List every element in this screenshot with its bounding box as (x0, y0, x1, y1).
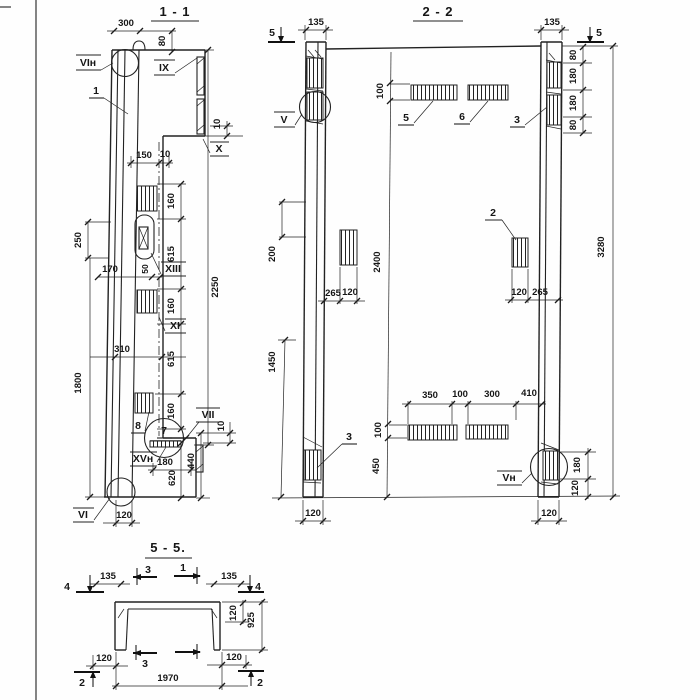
insert-5 (411, 85, 457, 100)
dim-2400: 2400 (372, 251, 383, 272)
section-2-2-title: 2 - 2 (422, 4, 453, 19)
section-5-5: 5 - 5. 4 4 3 1 3 2 2 (64, 540, 268, 690)
node-label-vi: VI (78, 509, 88, 521)
dim-135: 135 (221, 571, 238, 582)
dim-135: 135 (544, 17, 561, 28)
dim-180: 180 (157, 457, 173, 468)
dim-50: 50 (140, 264, 150, 274)
dim-120: 120 (342, 287, 358, 298)
callout-1: 1 (93, 85, 99, 97)
sheet-border (0, 0, 36, 700)
dim-150: 150 (136, 150, 152, 161)
node-label-xiii: XIII (165, 263, 181, 275)
dim-135: 135 (308, 17, 325, 28)
dim-120: 120 (228, 605, 239, 621)
dim-80: 80 (568, 50, 579, 61)
dim-160: 160 (166, 298, 177, 314)
dim-3280: 3280 (596, 236, 607, 257)
node-label-vn: Vн (502, 472, 515, 484)
dim-120: 120 (511, 287, 527, 298)
dim-250: 250 (73, 232, 84, 248)
dim-615: 615 (166, 245, 177, 262)
dim-100: 100 (375, 83, 386, 99)
dim-180: 180 (568, 95, 579, 111)
anchor-plate (137, 186, 157, 211)
cut-label-5: 5 (269, 27, 275, 39)
node-label-x: X (215, 143, 222, 155)
cut-markers-5: 5 5 (268, 27, 604, 43)
cut-label-5: 5 (596, 27, 602, 39)
node-label-ix: IX (159, 62, 169, 74)
hatched-inserts (303, 50, 561, 484)
heel-plate (150, 441, 181, 447)
anchor-plate (137, 290, 157, 313)
dim-2250: 2250 (210, 276, 221, 297)
dim-120: 120 (116, 510, 132, 521)
dim-120: 120 (305, 508, 321, 519)
dim-170: 170 (102, 264, 118, 275)
dim-120: 120 (570, 480, 581, 496)
anchor-plate (135, 393, 153, 413)
node-label-xi: XI (170, 320, 180, 332)
dim-440: 440 (186, 453, 197, 469)
cut-label-4: 4 (64, 581, 70, 593)
dim-100: 100 (452, 389, 468, 400)
cut-label-3: 3 (145, 564, 151, 576)
callout-3: 3 (346, 431, 352, 443)
dimensions-5-5: 135 135 120 925 120 120 1970 (86, 571, 268, 690)
callout-6: 6 (459, 111, 465, 123)
dim-925: 925 (246, 611, 257, 628)
insert-6 (468, 85, 508, 100)
cut-label-2: 2 (79, 677, 85, 689)
dim-265: 265 (325, 288, 342, 299)
detail-label-7: 7 (161, 425, 167, 437)
node-label-v: V (280, 114, 287, 126)
section-1-1-title: 1 - 1 (159, 4, 190, 19)
dim-10: 10 (160, 149, 171, 160)
dim-615: 615 (166, 350, 177, 367)
lifting-slot (135, 215, 154, 259)
dim-620: 620 (167, 470, 178, 486)
insert-2 (512, 238, 528, 267)
callout-8: 8 (135, 420, 141, 432)
section-1-1: 1 - 1 (73, 4, 243, 527)
dim-410: 410 (521, 388, 537, 399)
drawing-sheet: 1 - 1 (0, 0, 700, 700)
dim-180: 180 (568, 68, 579, 84)
dim-160: 160 (166, 403, 177, 419)
callout-5: 5 (403, 112, 409, 124)
dim-135: 135 (100, 571, 117, 582)
dim-300: 300 (484, 389, 500, 400)
dim-100: 100 (373, 422, 384, 438)
dim-350: 350 (422, 390, 438, 401)
dim-120: 120 (541, 508, 557, 519)
dim-180: 180 (572, 457, 583, 473)
dim-80: 80 (157, 36, 168, 47)
node-label-vin: VIн (80, 57, 96, 69)
dim-450: 450 (371, 458, 382, 474)
section-2-2: 2 - 2 5 (267, 4, 620, 525)
callout-2: 2 (490, 207, 496, 219)
dim-1450: 1450 (267, 351, 278, 372)
drawing-canvas: 1 - 1 (0, 0, 700, 700)
dim-1800: 1800 (73, 372, 84, 393)
cut-label-2: 2 (257, 677, 263, 689)
callout-3: 3 (514, 114, 520, 126)
dim-310: 310 (114, 344, 130, 355)
dim-80: 80 (568, 120, 579, 131)
dim-160: 160 (166, 193, 177, 209)
dim-1970: 1970 (157, 673, 178, 684)
dim-265: 265 (532, 287, 549, 298)
dim-120: 120 (226, 652, 242, 663)
column-outline (104, 41, 205, 497)
node-label-vii: VII (202, 409, 215, 421)
dim-120: 120 (96, 653, 112, 664)
dim-300: 300 (118, 18, 134, 29)
cut-label-3: 3 (142, 658, 148, 670)
dim-200: 200 (267, 246, 278, 262)
node-label-xvn: XVн (133, 453, 153, 465)
channel-outline (115, 602, 220, 650)
cut-label-1: 1 (180, 562, 186, 574)
dim-10-step: 10 (212, 119, 223, 130)
section-5-5-title: 5 - 5. (150, 540, 186, 555)
